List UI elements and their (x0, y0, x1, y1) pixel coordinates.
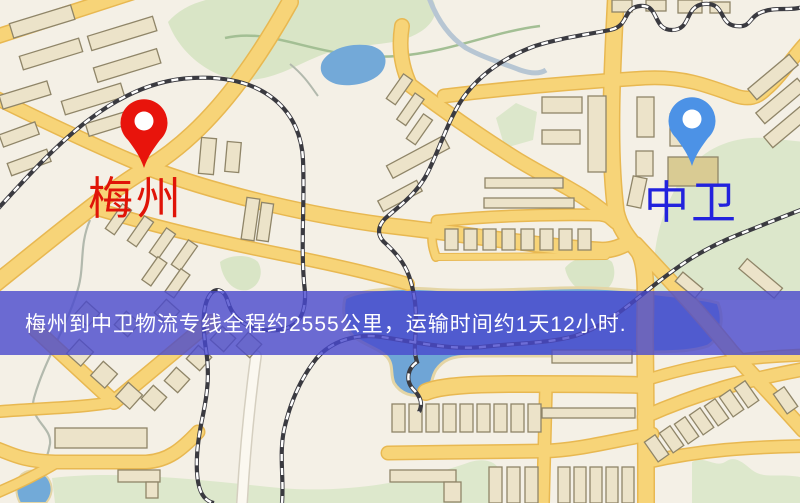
origin-pin-icon (114, 96, 174, 174)
route-info-banner: 梅州到中卫物流专线全程约2555公里，运输时间约1天12小时. (0, 291, 800, 355)
origin-city-label: 梅州 (88, 176, 184, 221)
route-info-text: 梅州到中卫物流专线全程约2555公里，运输时间约1天12小时. (25, 308, 627, 338)
destination-city-label: 中卫 (644, 180, 738, 225)
destination-pin-icon (662, 94, 722, 172)
map-canvas (0, 0, 800, 503)
map-image: 梅州 中卫 梅州到中卫物流专线全程约2555公里，运输时间约1天12小时. (0, 0, 800, 503)
